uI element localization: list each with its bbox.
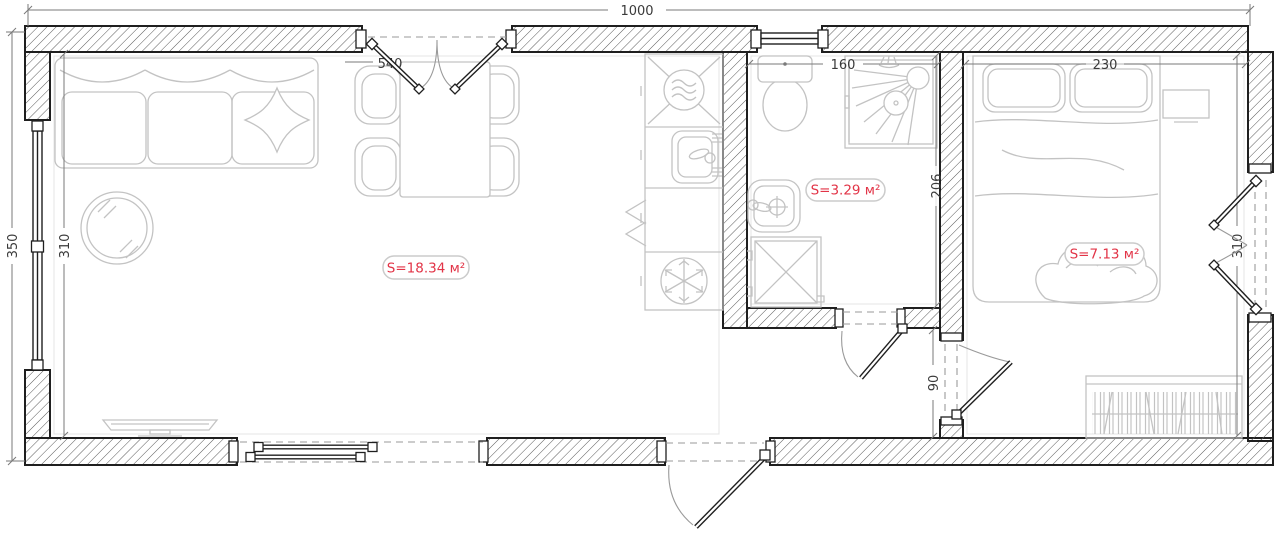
nightstand-icon [1163,90,1209,122]
dim-label: 310 [58,234,73,259]
toilet-icon [758,56,812,131]
wall-segment [1248,315,1273,441]
wall-segment [487,438,665,465]
sliding-window [240,442,483,462]
dining-set [355,62,519,197]
kitchen-sink-icon [672,131,722,183]
dim-label: 206 [930,174,945,199]
wall-segment [512,26,757,52]
chair-icon [355,66,401,124]
wall-segment [747,308,836,328]
kitchen-block [626,54,723,310]
furniture-layer [55,54,1242,438]
wall-segment [25,438,237,465]
dim-total-width: 1000 [24,4,1254,26]
wall-segment [25,26,362,52]
wash-basin-icon [748,180,800,232]
bathroom-area-text: S=3.29 м² [811,183,881,199]
shower-cabin-icon [845,56,937,148]
shower-head-icon [907,67,929,89]
floor-plan-drawing: 1000 350 310 540 160 206 90 230 [0,0,1280,539]
dim-label: 90 [927,375,942,392]
wall-segment [723,52,747,328]
folding-doors-icon [626,200,646,246]
round-table-icon [81,192,153,264]
wall-segment [1248,52,1273,172]
wall-segment [770,438,1273,465]
fridge-snowflake-icon [661,258,707,304]
dim-label: 350 [6,234,21,259]
dim-label: 1000 [620,4,653,19]
wall-segment [822,26,1248,52]
chair-icon [355,138,401,196]
left-window [32,121,44,370]
bedroom-area-label: S=7.13 м² [1065,243,1144,265]
bed-icon [973,56,1160,304]
wall-segment [25,52,50,120]
floor-plan-canvas: 1000 350 310 540 160 206 90 230 [0,0,1280,539]
bathroom-area-label: S=3.29 м² [806,179,885,201]
wall-segment [25,370,50,438]
washing-machine-icon [648,57,720,124]
bedroom-area-text: S=7.13 м² [1070,247,1140,263]
entrance-door [666,443,770,527]
sofa-icon [55,58,318,168]
dim-total-depth: 350 [6,28,25,465]
shower-tray-icon [747,237,824,307]
living-area-label: S=18.34 м² [383,256,469,279]
bookshelf-icon [1086,376,1242,438]
dim-label: 230 [1093,58,1118,73]
bathroom-window [761,33,818,44]
wall-segment [904,308,940,328]
living-area-text: S=18.34 м² [387,261,465,277]
bedroom-door [945,344,1011,419]
dim-label: 160 [831,58,856,73]
drain-icon [884,91,908,115]
